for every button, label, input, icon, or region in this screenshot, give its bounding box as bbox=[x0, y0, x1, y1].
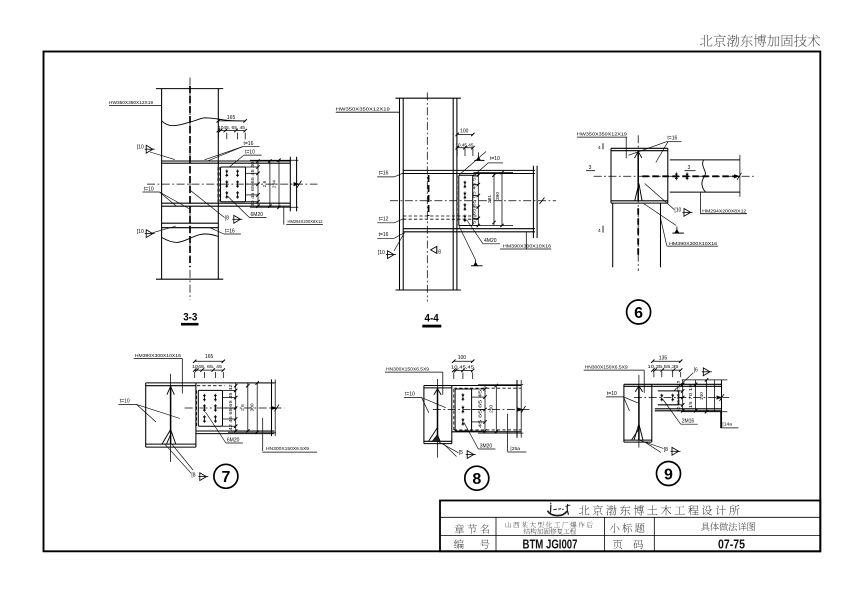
svg-text:4: 4 bbox=[598, 145, 601, 151]
svg-text:165: 165 bbox=[227, 115, 236, 121]
svg-text:281: 281 bbox=[487, 195, 493, 203]
svg-text:7: 7 bbox=[221, 469, 230, 486]
svg-text:4M20: 4M20 bbox=[484, 238, 497, 244]
svg-text:[10: [10 bbox=[137, 144, 144, 150]
svg-text:300: 300 bbox=[250, 403, 256, 411]
svg-text:250: 250 bbox=[488, 405, 494, 413]
svg-text:[6: [6 bbox=[694, 367, 698, 373]
svg-text:[14a: [14a bbox=[722, 421, 732, 427]
svg-text:HM390X300X10X16: HM390X300X10X16 bbox=[503, 243, 551, 249]
svg-text:t=16: t=16 bbox=[667, 135, 677, 141]
svg-text:4: 4 bbox=[598, 228, 601, 234]
svg-text:2 6: 2 6 bbox=[240, 404, 246, 411]
svg-text:HN300X150X6.5X9: HN300X150X6.5X9 bbox=[266, 446, 309, 452]
svg-text:3: 3 bbox=[589, 165, 592, 171]
svg-text:15 35 55 35 15: 15 35 55 35 15 bbox=[675, 380, 680, 412]
svg-text:[8: [8 bbox=[225, 215, 229, 221]
svg-text:t=16: t=16 bbox=[379, 171, 389, 177]
svg-text:30 45 65 65 45 30: 30 45 65 65 45 30 bbox=[250, 161, 255, 207]
svg-text:t=12: t=12 bbox=[379, 216, 389, 222]
svg-text:07-75: 07-75 bbox=[718, 536, 745, 551]
svg-text:9: 9 bbox=[664, 466, 673, 483]
svg-text:45 65 65 45: 45 65 65 45 bbox=[477, 389, 482, 428]
svg-text:4-4: 4-4 bbox=[425, 312, 440, 324]
svg-text:t=16: t=16 bbox=[379, 232, 389, 238]
svg-text:t=10: t=10 bbox=[245, 150, 255, 156]
svg-text:100: 100 bbox=[458, 355, 467, 361]
svg-text:HN300X150X6.5X9: HN300X150X6.5X9 bbox=[585, 365, 628, 371]
svg-text:t=16: t=16 bbox=[244, 141, 254, 147]
svg-text:6M20: 6M20 bbox=[251, 212, 264, 218]
svg-text:HW350X350X12X19: HW350X350X12X19 bbox=[109, 100, 153, 106]
svg-text:[10: [10 bbox=[378, 250, 385, 256]
svg-text:8: 8 bbox=[438, 249, 441, 255]
svg-text:[10: [10 bbox=[137, 229, 144, 235]
svg-text:6M20: 6M20 bbox=[227, 437, 240, 443]
svg-text:15 70 15: 15 70 15 bbox=[688, 383, 693, 408]
svg-text:2M16: 2M16 bbox=[682, 419, 695, 425]
svg-text:1045, 65, 45: 1045, 65, 45 bbox=[192, 364, 223, 369]
svg-text:t=10: t=10 bbox=[144, 186, 154, 192]
svg-text:8: 8 bbox=[472, 471, 481, 488]
svg-text:3M20: 3M20 bbox=[480, 444, 493, 450]
svg-text:t=10: t=10 bbox=[120, 398, 130, 404]
svg-text:[5: [5 bbox=[459, 450, 463, 456]
svg-text:165: 165 bbox=[205, 354, 214, 360]
svg-text:100: 100 bbox=[460, 128, 469, 134]
svg-text:10,35,55,35: 10,35,55,35 bbox=[648, 364, 680, 369]
svg-text:2 6: 2 6 bbox=[262, 180, 268, 187]
svg-text:42 45 65 65 45 42: 42 45 65 65 45 42 bbox=[228, 384, 233, 431]
svg-text:HW350X350X12X19: HW350X350X12X19 bbox=[577, 132, 627, 138]
svg-text:HM294X200X8X12: HM294X200X8X12 bbox=[288, 219, 323, 225]
svg-text:[10: [10 bbox=[674, 208, 681, 214]
svg-text:t=10: t=10 bbox=[490, 156, 500, 162]
svg-text:HW350X350X12X19: HW350X350X12X19 bbox=[336, 106, 390, 112]
svg-text:3-3: 3-3 bbox=[183, 312, 197, 324]
svg-text:3: 3 bbox=[688, 165, 691, 171]
svg-text:135: 135 bbox=[659, 355, 668, 361]
svg-text:[25a: [25a bbox=[510, 446, 520, 452]
svg-text:57 65 65 65 45 52: 57 65 65 65 45 52 bbox=[472, 173, 477, 224]
svg-text:[8: [8 bbox=[191, 472, 195, 478]
svg-text:294: 294 bbox=[271, 180, 277, 188]
svg-text:[8: [8 bbox=[664, 447, 668, 453]
svg-text:10,45,45: 10,45,45 bbox=[451, 364, 475, 369]
svg-text:t=10: t=10 bbox=[405, 391, 415, 397]
svg-text:t=16: t=16 bbox=[225, 229, 235, 235]
svg-text:t=10: t=10 bbox=[607, 391, 617, 397]
svg-text:6: 6 bbox=[634, 305, 643, 322]
svg-text:BTM JGI007: BTM JGI007 bbox=[523, 537, 578, 552]
svg-text:140: 140 bbox=[699, 392, 705, 400]
svg-text:390: 390 bbox=[495, 192, 501, 200]
